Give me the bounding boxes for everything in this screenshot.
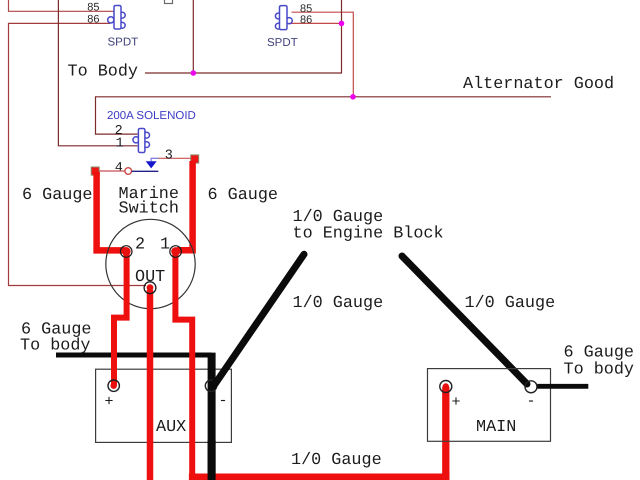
svg-text:1/0 Gauge: 1/0 Gauge xyxy=(293,294,384,313)
svg-text:1: 1 xyxy=(160,236,170,255)
svg-text:86: 86 xyxy=(300,14,312,26)
svg-text:SPDT: SPDT xyxy=(267,37,298,49)
svg-text:200A SOLENOID: 200A SOLENOID xyxy=(107,110,196,122)
svg-text:4: 4 xyxy=(115,161,123,176)
svg-text:1/0 Gauge: 1/0 Gauge xyxy=(465,294,556,313)
svg-text:6 Gauge: 6 Gauge xyxy=(22,186,93,205)
svg-text:MAIN: MAIN xyxy=(476,418,516,437)
svg-text:1/0 Gauge: 1/0 Gauge xyxy=(291,451,382,470)
svg-text:to Engine Block: to Engine Block xyxy=(293,225,444,244)
svg-text:86: 86 xyxy=(87,14,99,26)
svg-text:-: - xyxy=(219,393,228,410)
svg-text:2: 2 xyxy=(135,236,145,255)
svg-text:OUT: OUT xyxy=(135,268,165,287)
svg-text:To body: To body xyxy=(564,361,635,380)
svg-text:AUX: AUX xyxy=(156,418,186,437)
svg-text:-: - xyxy=(527,393,536,410)
svg-text:To Body: To Body xyxy=(68,63,139,82)
svg-text:Switch: Switch xyxy=(119,200,179,219)
svg-text:6 Gauge: 6 Gauge xyxy=(208,186,279,205)
svg-text:+: + xyxy=(105,393,114,410)
svg-text:Alternator Good: Alternator Good xyxy=(463,75,614,94)
svg-text:To body: To body xyxy=(20,337,91,356)
svg-text:1: 1 xyxy=(116,137,124,152)
svg-text:3: 3 xyxy=(165,148,173,163)
svg-text:85: 85 xyxy=(87,2,99,14)
svg-text:+: + xyxy=(452,394,461,411)
svg-text:SPDT: SPDT xyxy=(108,37,139,49)
